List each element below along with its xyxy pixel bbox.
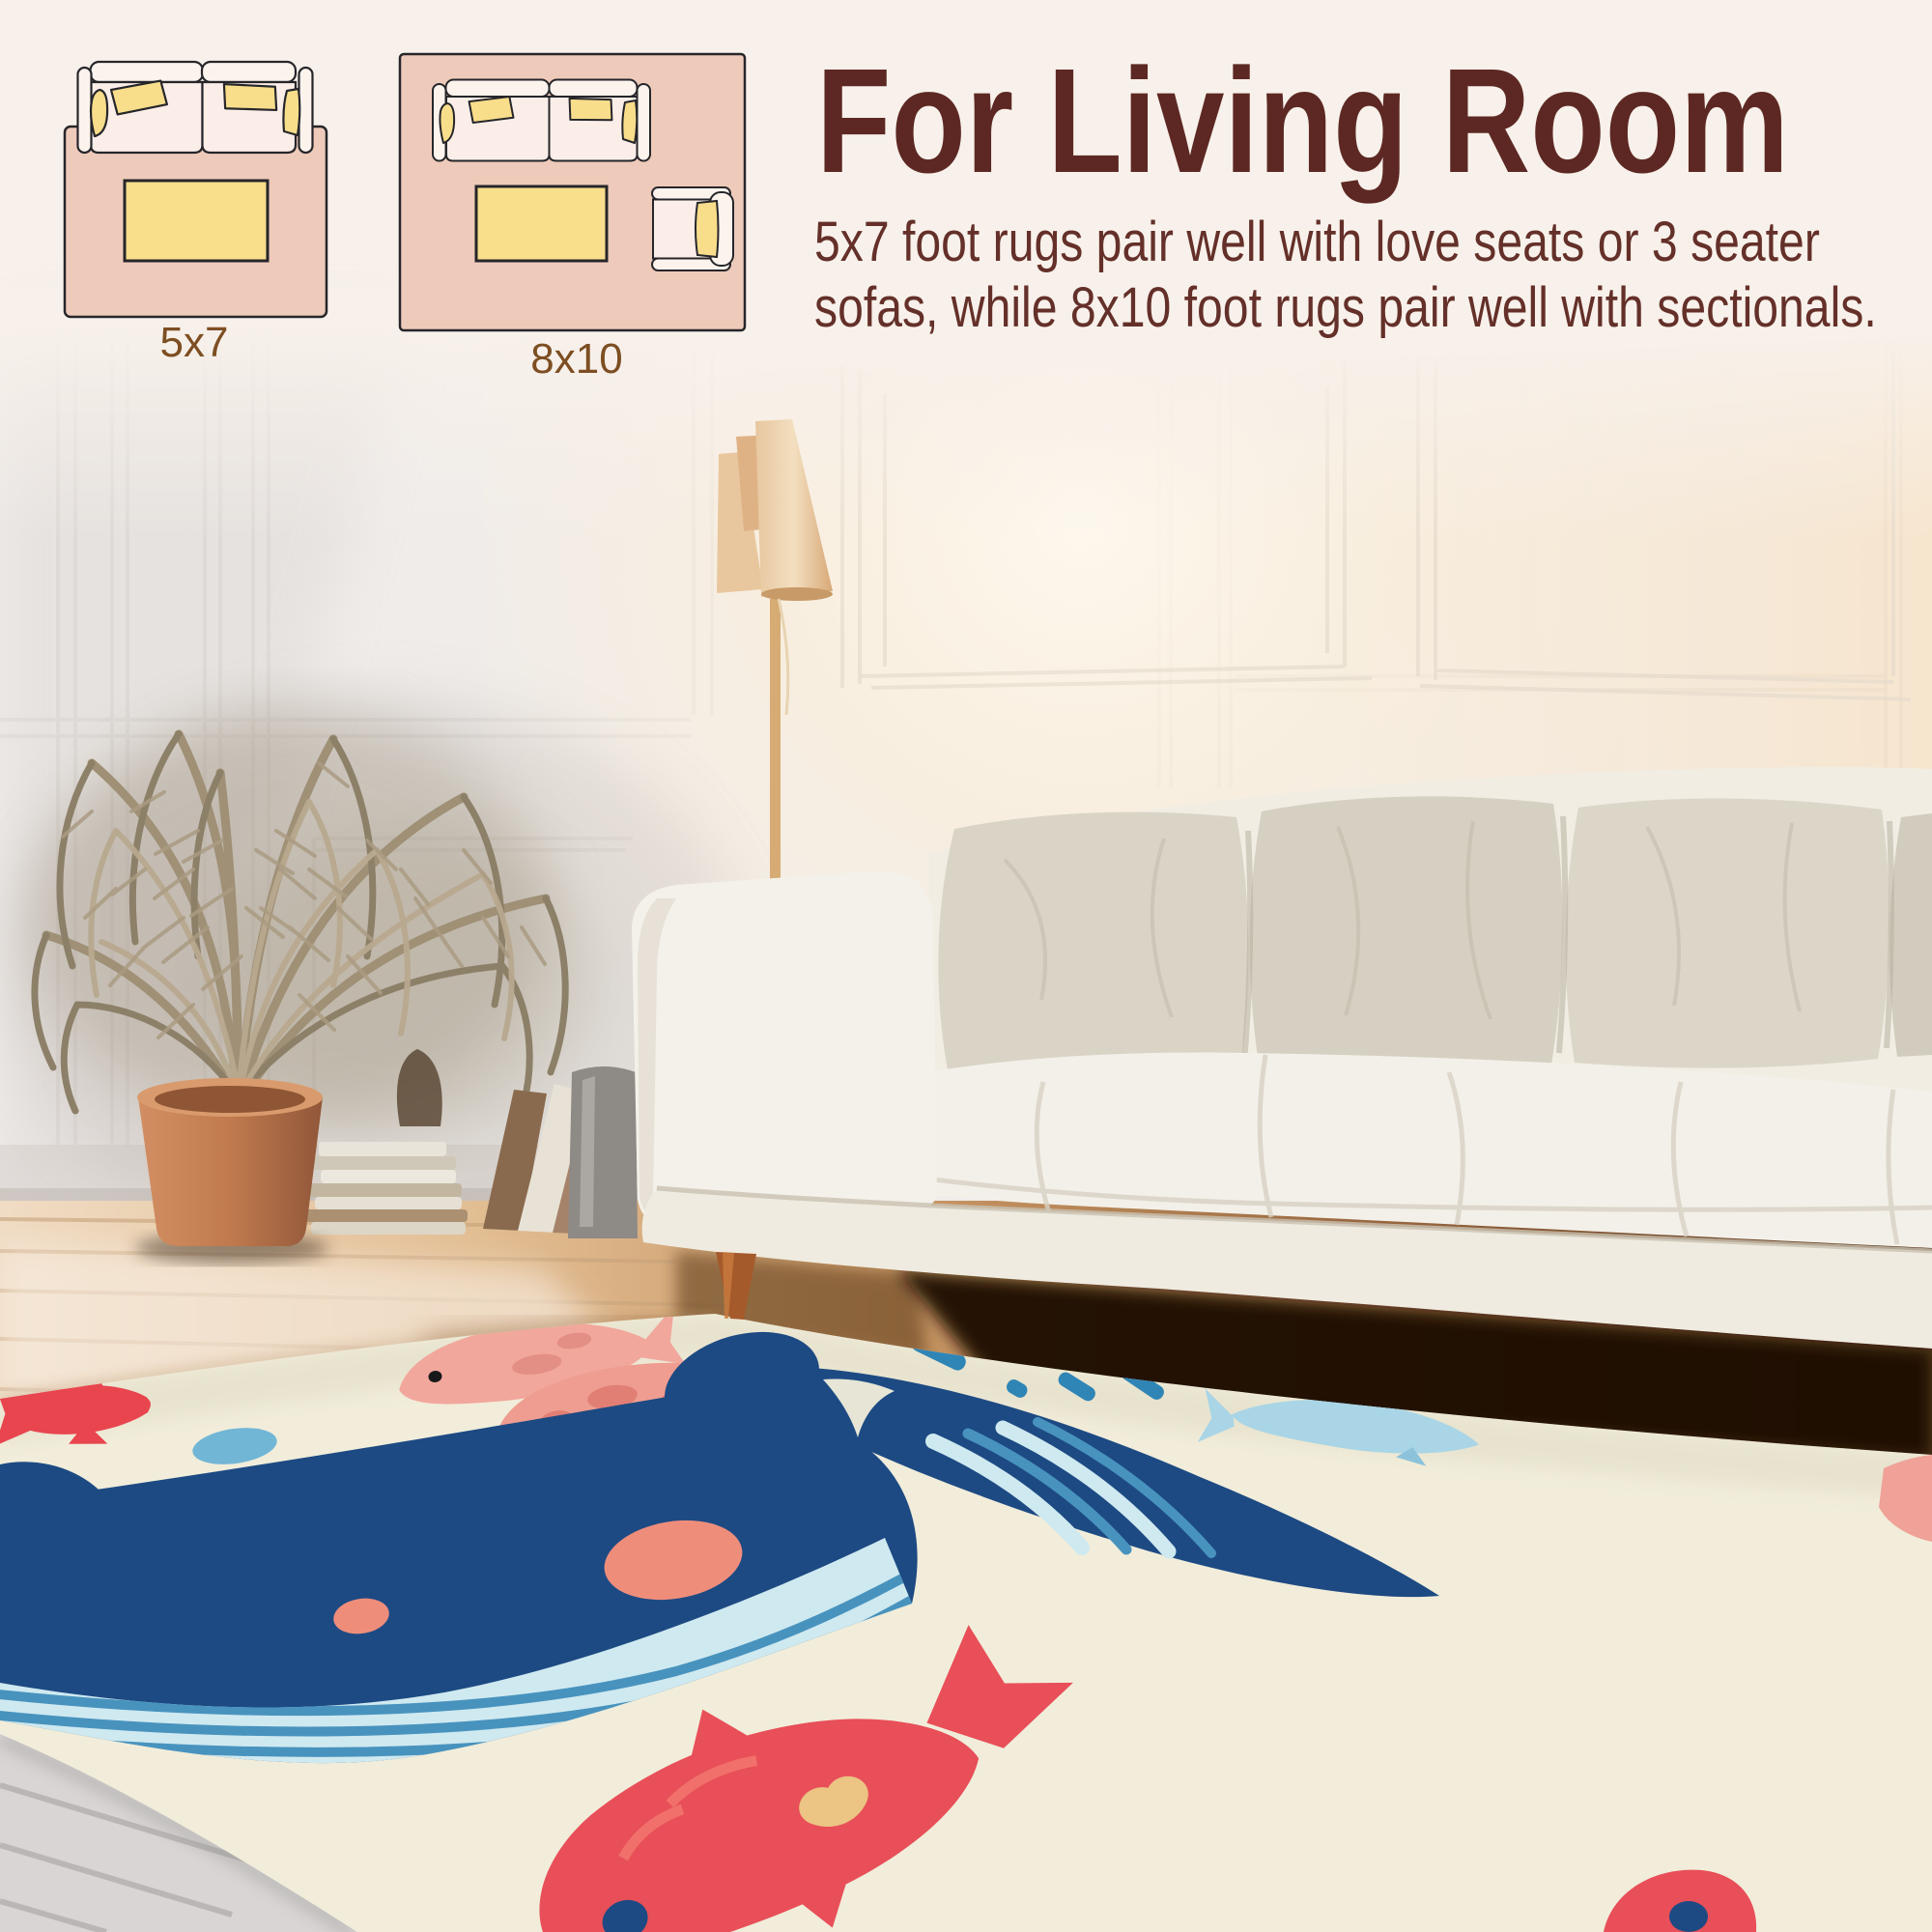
svg-text:8x10: 8x10	[530, 335, 622, 383]
